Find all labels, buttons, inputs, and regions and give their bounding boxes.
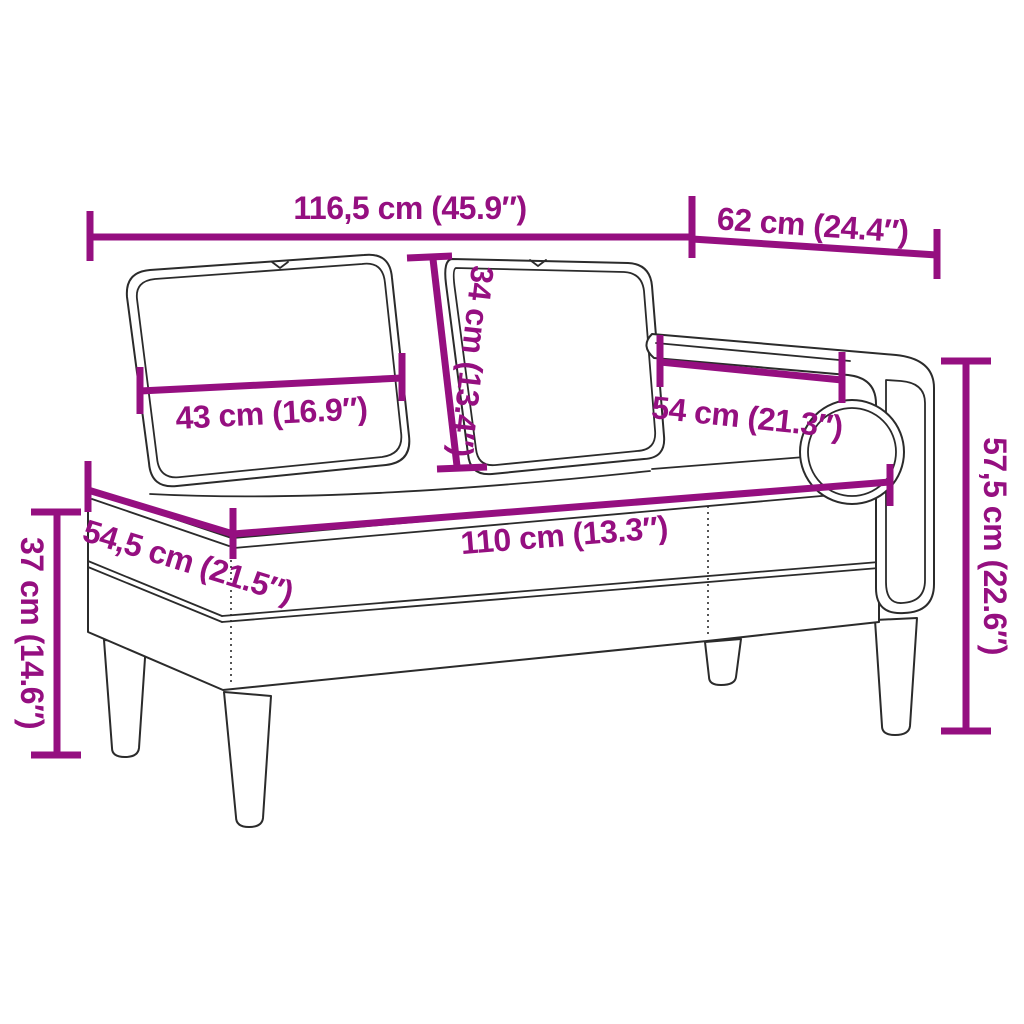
front-middle-leg xyxy=(224,692,271,827)
dimension-leg-height: 37 cm (14.6″) xyxy=(14,512,81,755)
left-back-cushion xyxy=(127,255,409,487)
dim-label-armrest-length: 54 cm (21.3″) xyxy=(650,389,845,445)
dim-label-total-height: 57,5 cm (22.6″) xyxy=(977,437,1013,655)
dim-tick xyxy=(437,467,487,469)
back-leg xyxy=(705,639,741,685)
diagram-canvas: 116,5 cm (45.9″) 62 cm (24.4″) 34 cm (13… xyxy=(0,0,1024,1024)
dimension-total-height: 57,5 cm (22.6″) xyxy=(941,361,1013,731)
front-left-leg xyxy=(104,640,146,757)
dim-tick xyxy=(407,256,452,258)
dimension-total-width: 116,5 cm (45.9″) xyxy=(90,190,692,261)
dim-label-total-width: 116,5 cm (45.9″) xyxy=(293,190,526,226)
dim-label-leg-height: 37 cm (14.6″) xyxy=(14,537,50,729)
dimension-top-depth: 62 cm (24.4″) xyxy=(692,200,937,279)
right-leg xyxy=(875,618,917,735)
diagram-svg: 116,5 cm (45.9″) 62 cm (24.4″) 34 cm (13… xyxy=(0,0,1024,1024)
